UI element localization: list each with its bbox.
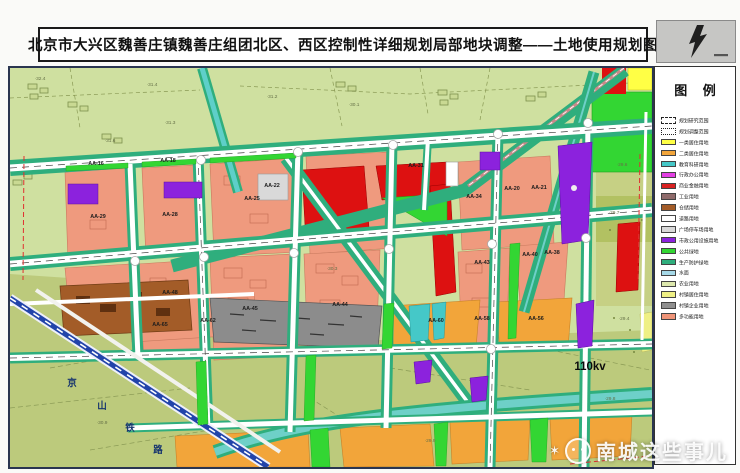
railway-label: 山 bbox=[97, 400, 107, 412]
block-label: AA-21 bbox=[531, 185, 547, 191]
elevation-label: ·29.7 bbox=[609, 210, 620, 216]
block-label: AA-65 bbox=[152, 322, 168, 328]
municipal-symbol bbox=[571, 185, 577, 191]
legend-label: 规划研究范围 bbox=[679, 117, 709, 124]
elevation-label: ·31.6 bbox=[105, 138, 116, 144]
legend-label: 多功能用地 bbox=[679, 313, 704, 320]
elevation-label: ·29.6 bbox=[617, 162, 628, 168]
legend-title: 图 例 bbox=[655, 80, 735, 99]
block-label: AA-60 bbox=[428, 318, 444, 324]
legend-swatch bbox=[661, 302, 676, 309]
block-label: AA-22 bbox=[264, 183, 280, 189]
legend-item: 工业用地 bbox=[655, 191, 735, 202]
legend-label: 教育科研用地 bbox=[679, 160, 709, 167]
legend-items: 规划研究范围规划调整范围一类居住用地二类居住用地教育科研用地行政办公用地商业金融… bbox=[655, 115, 735, 322]
elevation-label: ·30.9 bbox=[97, 420, 108, 426]
legend-label: 二类居住用地 bbox=[679, 149, 709, 156]
watermark-text: 南城这些事儿 bbox=[596, 436, 728, 465]
legend-item: 商业金融用地 bbox=[655, 180, 735, 191]
legend-swatch bbox=[661, 237, 676, 244]
legend-label: 工业用地 bbox=[679, 193, 699, 200]
legend-item: 仓储用地 bbox=[655, 202, 735, 213]
legend-item: 水面 bbox=[655, 267, 735, 278]
elevation-label: ·30.3 bbox=[327, 266, 338, 272]
legend-swatch bbox=[661, 226, 676, 233]
watermark: ✶ 南城这些事儿 bbox=[549, 436, 728, 465]
north-arrow-icon bbox=[657, 21, 735, 62]
legend-label: 村镇居住用地 bbox=[679, 291, 709, 298]
block-label: AA-56 bbox=[528, 316, 544, 322]
legend-item: 二类居住用地 bbox=[655, 148, 735, 159]
legend-swatch bbox=[661, 259, 676, 266]
elevation-label: ·31.2 bbox=[267, 94, 278, 100]
legend-label: 仓储用地 bbox=[679, 204, 699, 211]
legend-label: 一类居住用地 bbox=[679, 139, 709, 146]
residential1-ne bbox=[628, 68, 652, 90]
block-label: AA-18 bbox=[160, 158, 176, 164]
block-label: AA-34 bbox=[466, 194, 482, 200]
north-arrow-box bbox=[656, 20, 736, 63]
elevation-label: ·31.3 bbox=[165, 120, 176, 126]
railway-label: 铁 bbox=[125, 422, 135, 434]
legend-swatch bbox=[661, 313, 676, 320]
legend-label: 道路用地 bbox=[679, 215, 699, 222]
elevation-label: ·31.4 bbox=[147, 82, 158, 88]
power-line-label: 110kv bbox=[574, 361, 606, 373]
legend-swatch bbox=[661, 270, 676, 277]
legend-item: 市政公用设施用地 bbox=[655, 235, 735, 246]
legend-item: 广场停车场用地 bbox=[655, 224, 735, 235]
block-label: AA-58 bbox=[474, 316, 490, 322]
block-label: AA-31 bbox=[408, 163, 424, 169]
legend-swatch bbox=[661, 183, 676, 190]
legend-swatch bbox=[661, 139, 676, 146]
legend-label: 公共绿地 bbox=[679, 247, 699, 254]
page-title: 北京市大兴区魏善庄镇魏善庄组团北区、西区控制性详细规划局部地块调整——土地使用规… bbox=[28, 34, 658, 55]
paw-icon: ✶ bbox=[549, 443, 560, 459]
legend-item: 村镇居住用地 bbox=[655, 289, 735, 300]
legend-swatch bbox=[661, 161, 676, 168]
railway-label: 路 bbox=[153, 444, 163, 456]
legend-label: 农业用地 bbox=[679, 280, 699, 287]
legend-swatch bbox=[661, 128, 676, 135]
legend-label: 水面 bbox=[679, 269, 689, 276]
planning-map-svg: AA-16AA-18AA-29AA-28AA-25AA-22AA-31AA-34… bbox=[10, 68, 652, 467]
legend-item: 规划研究范围 bbox=[655, 115, 735, 126]
legend-label: 村镇企业用地 bbox=[679, 302, 709, 309]
block-label: AA-48 bbox=[162, 290, 178, 296]
map-frame: AA-16AA-18AA-29AA-28AA-25AA-22AA-31AA-34… bbox=[8, 66, 654, 469]
title-bar: 北京市大兴区魏善庄镇魏善庄组团北区、西区控制性详细规划局部地块调整——土地使用规… bbox=[38, 27, 648, 62]
legend-label: 市政公用设施用地 bbox=[679, 237, 718, 244]
block-label: AA-45 bbox=[242, 306, 258, 312]
legend-swatch bbox=[661, 150, 676, 157]
legend-swatch bbox=[661, 215, 676, 222]
block-label: AA-16 bbox=[88, 161, 104, 167]
legend-swatch bbox=[661, 281, 676, 288]
legend-swatch bbox=[661, 193, 676, 200]
elevation-label: ·29.9 bbox=[425, 438, 436, 444]
legend-panel: 图 例 规划研究范围规划调整范围一类居住用地二类居住用地教育科研用地行政办公用地… bbox=[654, 66, 736, 465]
page: 北京市大兴区魏善庄镇魏善庄组团北区、西区控制性详细规划局部地块调整——土地使用规… bbox=[0, 0, 740, 473]
elevation-label: ·32.4 bbox=[35, 76, 46, 82]
legend-swatch bbox=[661, 291, 676, 298]
legend-label: 生产防护绿地 bbox=[679, 258, 709, 265]
block-label: AA-29 bbox=[90, 214, 106, 220]
block-label: AA-28 bbox=[162, 212, 178, 218]
legend-item: 农业用地 bbox=[655, 278, 735, 289]
legend-swatch bbox=[661, 204, 676, 211]
block-label: AA-40 bbox=[522, 252, 538, 258]
legend-item: 道路用地 bbox=[655, 213, 735, 224]
legend-item: 教育科研用地 bbox=[655, 159, 735, 170]
legend-label: 行政办公用地 bbox=[679, 171, 709, 178]
legend-item: 多功能用地 bbox=[655, 311, 735, 322]
elevation-label: ·29.4 bbox=[619, 316, 630, 322]
legend-label: 规划调整范围 bbox=[679, 128, 709, 135]
elevation-label: ·30.1 bbox=[349, 102, 360, 108]
legend-item: 规划调整范围 bbox=[655, 126, 735, 137]
block-label: AA-43 bbox=[474, 260, 490, 266]
railway-label: 京 bbox=[67, 377, 77, 389]
legend-item: 村镇企业用地 bbox=[655, 300, 735, 311]
block-label: AA-25 bbox=[244, 196, 260, 202]
legend-item: 公共绿地 bbox=[655, 246, 735, 257]
legend-item: 行政办公用地 bbox=[655, 169, 735, 180]
warehouse-block bbox=[60, 280, 192, 336]
legend-item: 生产防护绿地 bbox=[655, 257, 735, 268]
legend-swatch bbox=[661, 172, 676, 179]
block-label: AA-62 bbox=[200, 318, 216, 324]
legend-label: 广场停车场用地 bbox=[679, 226, 713, 233]
legend-swatch bbox=[661, 117, 676, 124]
block-label: AA-44 bbox=[332, 302, 348, 308]
legend-label: 商业金融用地 bbox=[679, 182, 709, 189]
block-label: AA-38 bbox=[544, 250, 560, 256]
road-block bbox=[446, 162, 458, 186]
elevation-label: ·29.8 bbox=[605, 396, 616, 402]
watermark-logo-icon bbox=[565, 438, 591, 464]
legend-swatch bbox=[661, 248, 676, 255]
legend-item: 一类居住用地 bbox=[655, 137, 735, 148]
block-label: AA-20 bbox=[504, 186, 520, 192]
